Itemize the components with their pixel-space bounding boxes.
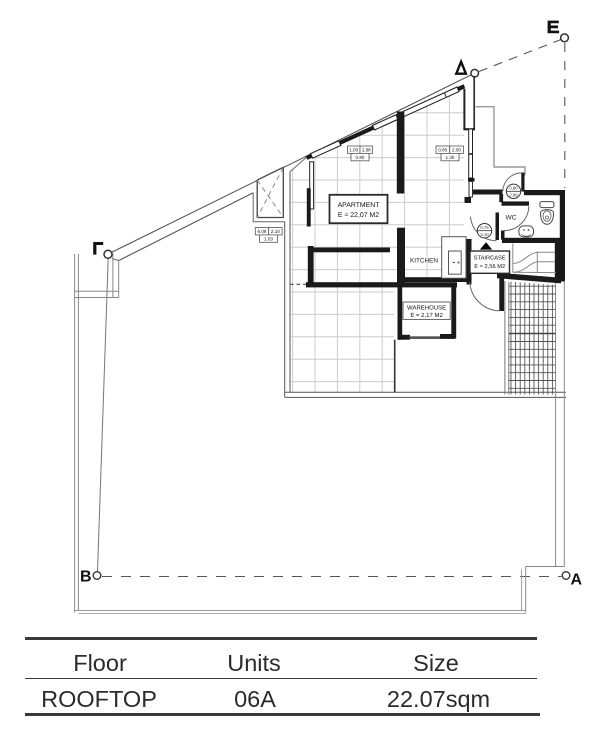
svg-text:0.75: 0.75 — [480, 225, 489, 230]
svg-text:2.99: 2.99 — [509, 193, 518, 198]
svg-text:0.85: 0.85 — [438, 148, 447, 153]
svg-text:2.00: 2.00 — [452, 148, 461, 153]
svg-text:STAIRCASE: STAIRCASE — [474, 256, 506, 262]
svg-text:3.10: 3.10 — [480, 232, 489, 237]
svg-text:KITCHEN: KITCHEN — [410, 257, 438, 264]
svg-text:E = 2,56 M2: E = 2,56 M2 — [474, 264, 505, 270]
svg-text:1.30: 1.30 — [446, 155, 455, 160]
svg-text:1.00: 1.00 — [349, 148, 358, 153]
svg-text:E = 22,07 M2: E = 22,07 M2 — [338, 212, 379, 219]
svg-text:E = 2,17 M2: E = 2,17 M2 — [410, 312, 443, 319]
svg-text:A: A — [571, 572, 583, 589]
svg-text:2.10: 2.10 — [271, 229, 280, 234]
svg-text:1.03: 1.03 — [264, 237, 273, 242]
svg-text:APARTMENT: APARTMENT — [338, 202, 381, 209]
svg-text:B: B — [80, 569, 92, 586]
svg-text:0.90: 0.90 — [509, 186, 518, 191]
svg-text:WAREHOUSE: WAREHOUSE — [407, 304, 446, 311]
svg-text:1.98: 1.98 — [362, 148, 371, 153]
svg-text:0.80: 0.80 — [356, 155, 365, 160]
svg-text:WC: WC — [506, 214, 517, 221]
svg-text:6.08: 6.08 — [258, 229, 267, 234]
